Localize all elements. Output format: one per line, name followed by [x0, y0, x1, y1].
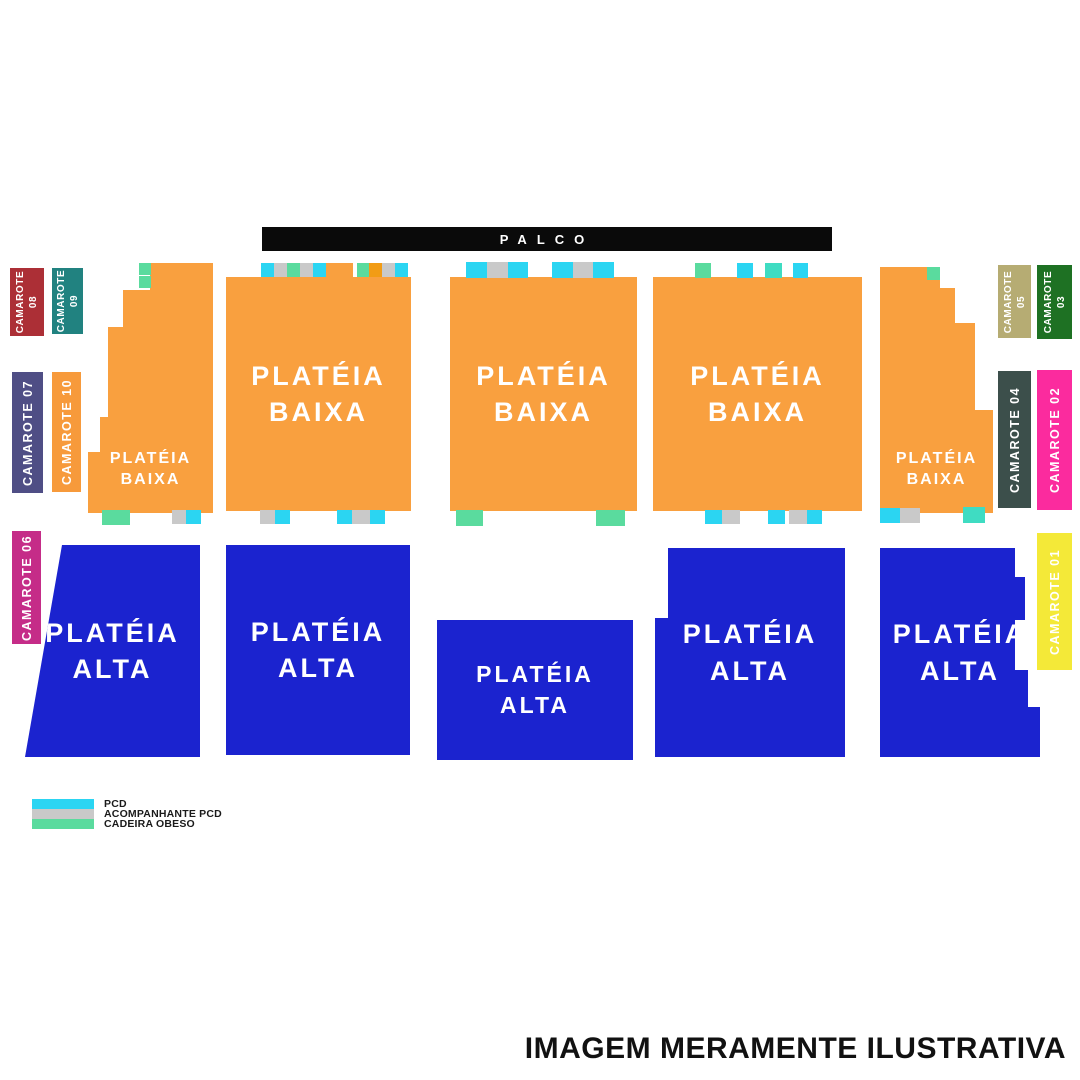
- seat-acompanhante-pcd: [300, 263, 313, 277]
- camarote-01: CAMAROTE 01: [1037, 533, 1072, 670]
- camarote-10: CAMAROTE 10: [52, 372, 81, 492]
- pcd-swatch: [32, 799, 94, 809]
- legend-row-obeso: CADEIRA OBESO: [32, 819, 222, 829]
- plateia-baixa-4: PLATÉIA BAIXA: [653, 277, 862, 511]
- camarote-05: CAMAROTE 05: [998, 265, 1031, 338]
- seat-cadeira-obeso: [357, 263, 369, 277]
- section-label: PLATÉIA BAIXA: [896, 448, 977, 513]
- camarote-04: CAMAROTE 04: [998, 371, 1031, 508]
- seat-cadeira-obeso: [139, 276, 151, 288]
- seat-pcd: [337, 510, 352, 524]
- camarote-07-label: CAMAROTE 07: [21, 379, 35, 485]
- camarote-04-label: CAMAROTE 04: [1008, 386, 1022, 492]
- camarote-07: CAMAROTE 07: [12, 372, 43, 493]
- seat-cadeira-obeso: [695, 263, 711, 278]
- stage: PALCO: [262, 227, 832, 251]
- plateia-alta-center: PLATÉIA ALTA: [437, 620, 633, 760]
- seat-cadeira-obeso: [287, 263, 300, 277]
- camarote-03-label: CAMAROTE 03: [1042, 271, 1068, 334]
- seat-cadeira-obeso: [596, 510, 625, 526]
- seat-acompanhante-pcd: [487, 262, 508, 278]
- plateia-alta-right: PLATÉIA ALTA: [880, 548, 1040, 757]
- seat-cadeira-obeso: [963, 507, 985, 523]
- section-edge: [325, 263, 353, 279]
- seat-cadeira-obeso: [765, 263, 782, 278]
- camarote-03: CAMAROTE 03: [1037, 265, 1072, 339]
- seat-acompanhante-pcd: [382, 263, 395, 277]
- seat-acompanhante-pcd: [900, 508, 920, 523]
- seat-acompanhante-pcd: [789, 510, 807, 524]
- seat-pcd: [593, 262, 614, 278]
- seat-acompanhante-pcd: [274, 263, 287, 277]
- camarote-06: CAMAROTE 06: [12, 531, 41, 644]
- camarote-09: CAMAROTE 09: [52, 268, 83, 334]
- camarote-02-label: CAMAROTE 02: [1048, 387, 1062, 493]
- seating-map: PALCO PLATÉIA BAIXA PLATÉIA BAIXA PLATÉI…: [0, 0, 1080, 1080]
- plateia-baixa-right: PLATÉIA BAIXA: [880, 267, 993, 513]
- acompanhante-swatch: [32, 809, 94, 819]
- plateia-alta-4: PLATÉIA ALTA: [655, 548, 845, 757]
- seat-acompanhante-pcd: [722, 510, 740, 524]
- camarote-08: CAMAROTE 08: [10, 268, 44, 336]
- stage-label: PALCO: [500, 232, 595, 247]
- section-label: PLATÉIA ALTA: [251, 614, 386, 687]
- section-label: PLATÉIA BAIXA: [110, 448, 191, 513]
- camarote-09-label: CAMAROTE 09: [55, 270, 81, 333]
- plateia-alta-left: PLATÉIA ALTA: [25, 545, 200, 757]
- seat-pcd: [275, 510, 290, 524]
- plateia-alta-2: PLATÉIA ALTA: [226, 545, 410, 755]
- seat-cadeira-obeso: [927, 267, 940, 280]
- seat-pcd: [807, 510, 822, 524]
- camarote-08-label: CAMAROTE 08: [14, 271, 40, 334]
- seat-pcd: [793, 263, 808, 278]
- disclaimer-text: IMAGEM MERAMENTE ILUSTRATIVA: [525, 1032, 1066, 1066]
- seat-legend: PCD ACOMPANHANTE PCD CADEIRA OBESO: [32, 799, 222, 829]
- section-label: PLATÉIA ALTA: [893, 616, 1028, 689]
- seat-pcd: [261, 263, 274, 277]
- seat-pcd: [186, 510, 201, 524]
- seat-acompanhante-pcd: [260, 510, 275, 524]
- section-label: PLATÉIA ALTA: [45, 615, 180, 688]
- seat-cadeira-obeso: [139, 263, 151, 275]
- seat-acompanhante-pcd: [352, 510, 370, 524]
- seat-cadeira-obeso: [102, 510, 130, 525]
- seat-pcd: [508, 262, 528, 278]
- section-label: PLATÉIA BAIXA: [690, 358, 825, 431]
- obeso-label: CADEIRA OBESO: [104, 818, 195, 830]
- camarote-05-label: CAMAROTE 05: [1002, 270, 1028, 333]
- camarote-06-label: CAMAROTE 06: [20, 534, 34, 640]
- seat-acompanhante-pcd: [172, 510, 186, 524]
- plateia-baixa-center: PLATÉIA BAIXA: [450, 277, 637, 511]
- section-label: PLATÉIA ALTA: [476, 659, 594, 721]
- seat-pcd: [313, 263, 326, 277]
- camarote-01-label: CAMAROTE 01: [1048, 548, 1062, 654]
- plateia-baixa-left: PLATÉIA BAIXA: [88, 263, 213, 513]
- seat-pcd: [552, 262, 573, 278]
- seat-pcd: [880, 508, 900, 523]
- seat-pcd: [705, 510, 722, 524]
- camarote-10-label: CAMAROTE 10: [60, 379, 74, 485]
- obeso-swatch: [32, 819, 94, 829]
- section-label: PLATÉIA ALTA: [683, 616, 818, 689]
- plateia-baixa-2: PLATÉIA BAIXA: [226, 277, 411, 511]
- section-label: PLATÉIA BAIXA: [251, 358, 386, 431]
- seat-pcd: [768, 510, 785, 524]
- seat-pcd: [395, 263, 408, 277]
- seat-cadeira-obeso: [456, 510, 483, 526]
- seat-pcd: [370, 510, 385, 524]
- camarote-02: CAMAROTE 02: [1037, 370, 1072, 510]
- seat-pcd: [737, 263, 753, 278]
- seat-pcd: [466, 262, 487, 278]
- seat-acompanhante-pcd: [573, 262, 593, 278]
- seat-gold: [369, 263, 382, 277]
- section-label: PLATÉIA BAIXA: [476, 358, 611, 431]
